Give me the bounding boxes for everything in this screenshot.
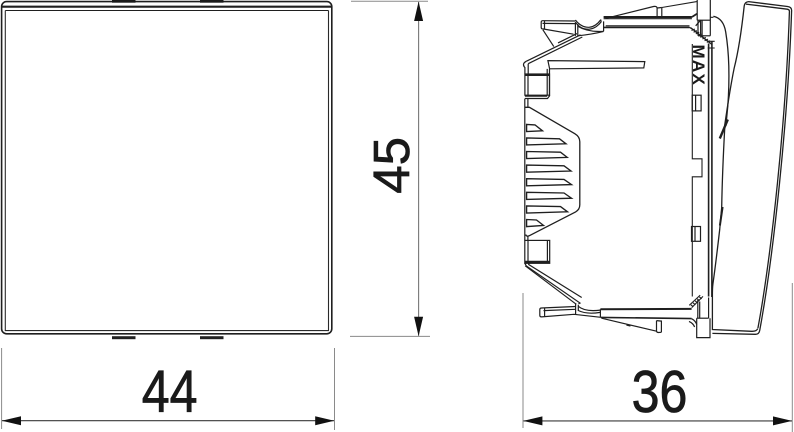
svg-text:44: 44 [142,358,198,425]
svg-text:45: 45 [363,137,420,194]
svg-text:36: 36 [632,358,688,425]
svg-text:MAX: MAX [689,45,708,86]
